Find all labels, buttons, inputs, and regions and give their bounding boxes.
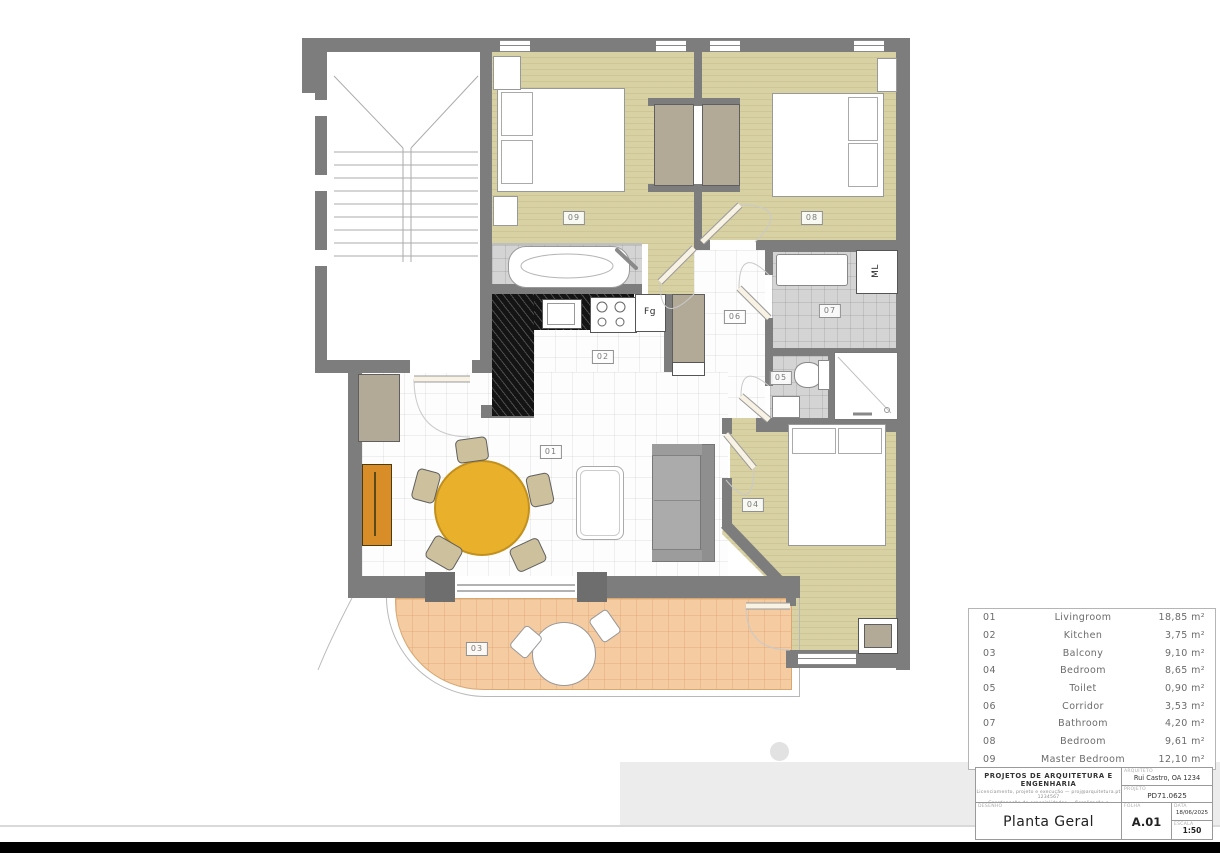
- legend-room-area: 3,75 m²: [1131, 630, 1215, 641]
- legend-room-code: 09: [969, 754, 1035, 765]
- window: [656, 40, 686, 52]
- washing-machine-label: ML: [871, 264, 881, 278]
- window: [710, 40, 740, 52]
- legend-room-code: 02: [969, 630, 1035, 641]
- sofa-back: [700, 444, 715, 562]
- balcony-slider: [455, 580, 577, 594]
- architect-name: Rui Castro, OA 1234: [1122, 774, 1212, 782]
- legend-room-name: Toilet: [1035, 683, 1131, 694]
- wall-segment: [315, 38, 327, 372]
- stairwell-floor: [327, 52, 480, 360]
- room-label: 05: [770, 371, 792, 385]
- room-label: 04: [742, 498, 764, 512]
- legend-room-name: Corridor: [1035, 701, 1131, 712]
- pillar: [577, 572, 607, 602]
- legend-row: 01 Livingroom 18,85 m²: [969, 609, 1215, 627]
- room-label: 08: [801, 211, 823, 225]
- wall-segment: [694, 52, 702, 98]
- balcony-table: [532, 622, 596, 686]
- wall-segment: [722, 418, 732, 434]
- legend-row: 04 Bedroom 8,65 m²: [969, 662, 1215, 680]
- legend-room-code: 03: [969, 648, 1035, 659]
- legend-row: 02 Kitchen 3,75 m²: [969, 627, 1215, 645]
- kitchen-counter: [492, 294, 534, 416]
- wall-vent: [315, 100, 327, 116]
- room-label: 07: [819, 304, 841, 318]
- pillow: [838, 428, 882, 454]
- wall-segment: [694, 240, 710, 250]
- legend-room-name: Balcony: [1035, 648, 1131, 659]
- entry-wardrobe: [358, 374, 400, 442]
- wall-segment: [315, 38, 910, 52]
- cooktop: [590, 297, 637, 333]
- wardrobe: [702, 104, 740, 186]
- wall-vent: [315, 250, 327, 266]
- coffee-table-inner: [580, 470, 620, 536]
- legend-row: 09 Master Bedroom 12,10 m²: [969, 751, 1215, 769]
- entry-door-gap: [410, 360, 472, 373]
- sheet-number-cell: FOLHA A.01: [1121, 802, 1172, 840]
- room-label: 01: [540, 445, 562, 459]
- legend-room-code: 06: [969, 701, 1035, 712]
- nightstand: [877, 58, 897, 92]
- sheet-label: FOLHA: [1124, 804, 1141, 809]
- pillow: [501, 140, 533, 184]
- legend-room-name: Livingroom: [1035, 612, 1131, 623]
- sofa-cushion-line: [654, 500, 700, 501]
- nightstand: [493, 196, 518, 226]
- legend-row: 08 Bedroom 9,61 m²: [969, 733, 1215, 751]
- wc-cistern: [818, 360, 830, 390]
- architect-label: ARQUITETO: [1124, 769, 1153, 774]
- sideboard: [362, 464, 392, 546]
- company-contact-line1: Licenciamento, projeto e execução — proj…: [976, 790, 1121, 800]
- legend-row: 05 Toilet 0,90 m²: [969, 680, 1215, 698]
- hall-cupboard: [672, 294, 705, 364]
- window: [854, 40, 884, 52]
- fridge-label: Fg: [644, 307, 656, 317]
- legend-row: 06 Corridor 3,53 m²: [969, 697, 1215, 715]
- wall-segment: [786, 598, 796, 606]
- wall-segment: [896, 38, 910, 670]
- scale-value: 1:50: [1172, 826, 1212, 835]
- legend-room-area: 18,85 m²: [1131, 612, 1215, 623]
- scale-cell: ESCALA 1:50: [1171, 820, 1213, 840]
- wardrobe: [654, 104, 694, 186]
- room-legend-table: 01 Livingroom 18,85 m² 02 Kitchen 3,75 m…: [968, 608, 1216, 770]
- legend-room-code: 07: [969, 718, 1035, 729]
- pillar: [425, 572, 455, 602]
- room-label: 03: [466, 642, 488, 656]
- legend-room-area: 12,10 m²: [1131, 754, 1215, 765]
- company-cell: PROJETOS DE ARQUITETURA E ENGENHARIA Lic…: [975, 767, 1122, 803]
- pillow: [848, 143, 878, 187]
- date-cell: DATA 18/06/2025: [1171, 802, 1213, 821]
- legend-room-area: 0,90 m²: [1131, 683, 1215, 694]
- legend-room-code: 08: [969, 736, 1035, 747]
- legend-room-area: 9,61 m²: [1131, 736, 1215, 747]
- date-label: DATA: [1174, 804, 1187, 809]
- legend-row: 03 Balcony 9,10 m²: [969, 644, 1215, 662]
- wall-segment: [480, 38, 492, 372]
- floor-plan-sheet: { "plan": { "room_labels": [ {"text":"01…: [0, 0, 1220, 853]
- wall-segment: [765, 252, 773, 275]
- bathtub: [508, 246, 630, 288]
- closet-interior: [864, 624, 892, 648]
- bathroom-sink: [776, 254, 848, 286]
- wall-vent: [315, 175, 327, 191]
- pillow: [848, 97, 878, 141]
- wall-segment: [756, 240, 765, 250]
- scale-label: ESCALA: [1174, 822, 1193, 827]
- sofa-armrest: [652, 444, 702, 456]
- legend-room-code: 05: [969, 683, 1035, 694]
- wall-segment: [607, 576, 800, 598]
- architect-cell: ARQUITETO Rui Castro, OA 1234: [1121, 767, 1213, 786]
- dining-chair: [454, 436, 489, 464]
- company-name: PROJETOS DE ARQUITETURA E ENGENHARIA: [976, 772, 1121, 788]
- sideboard-handle: [374, 472, 376, 536]
- pillow: [501, 92, 533, 136]
- hall-shelf: [672, 362, 705, 376]
- drawing-title-label: DESENHO: [978, 804, 1002, 809]
- legend-room-area: 4,20 m²: [1131, 718, 1215, 729]
- sheet-number: A.01: [1122, 815, 1171, 829]
- nightstand: [493, 56, 521, 90]
- shower: [834, 352, 898, 420]
- sink-basin: [547, 303, 575, 325]
- wall-segment: [348, 576, 425, 598]
- legend-room-name: Master Bedroom: [1035, 754, 1131, 765]
- window: [798, 653, 856, 665]
- legend-row: 07 Bathroom 4,20 m²: [969, 715, 1215, 733]
- legend-room-name: Bathroom: [1035, 718, 1131, 729]
- date-value: 18/06/2025: [1172, 810, 1212, 816]
- legend-room-area: 3,53 m²: [1131, 701, 1215, 712]
- bedroom09-entry-strip: [648, 244, 694, 294]
- room-label: 09: [563, 211, 585, 225]
- project-code-cell: PROJETO PD71.0625: [1121, 785, 1213, 803]
- legend-room-name: Kitchen: [1035, 630, 1131, 641]
- legend-room-code: 04: [969, 665, 1035, 676]
- ensuite-divider-line: [492, 243, 642, 245]
- pillow: [792, 428, 836, 454]
- legend-room-area: 9,10 m²: [1131, 648, 1215, 659]
- sofa: [652, 444, 704, 562]
- legend-room-name: Bedroom: [1035, 665, 1131, 676]
- drawing-title-cell: DESENHO Planta Geral: [975, 802, 1122, 840]
- room-label: 06: [724, 310, 746, 324]
- small-sink: [772, 396, 800, 418]
- legend-room-area: 8,65 m²: [1131, 665, 1215, 676]
- wall-segment: [302, 38, 315, 93]
- room-label: 02: [592, 350, 614, 364]
- wall-segment: [722, 478, 732, 528]
- sofa-armrest: [652, 549, 702, 561]
- project-label: PROJETO: [1124, 787, 1146, 792]
- drawing-title: Planta Geral: [976, 814, 1121, 830]
- project-code: PD71.0625: [1122, 791, 1212, 800]
- legend-room-name: Bedroom: [1035, 736, 1131, 747]
- legend-room-code: 01: [969, 612, 1035, 623]
- window: [500, 40, 530, 52]
